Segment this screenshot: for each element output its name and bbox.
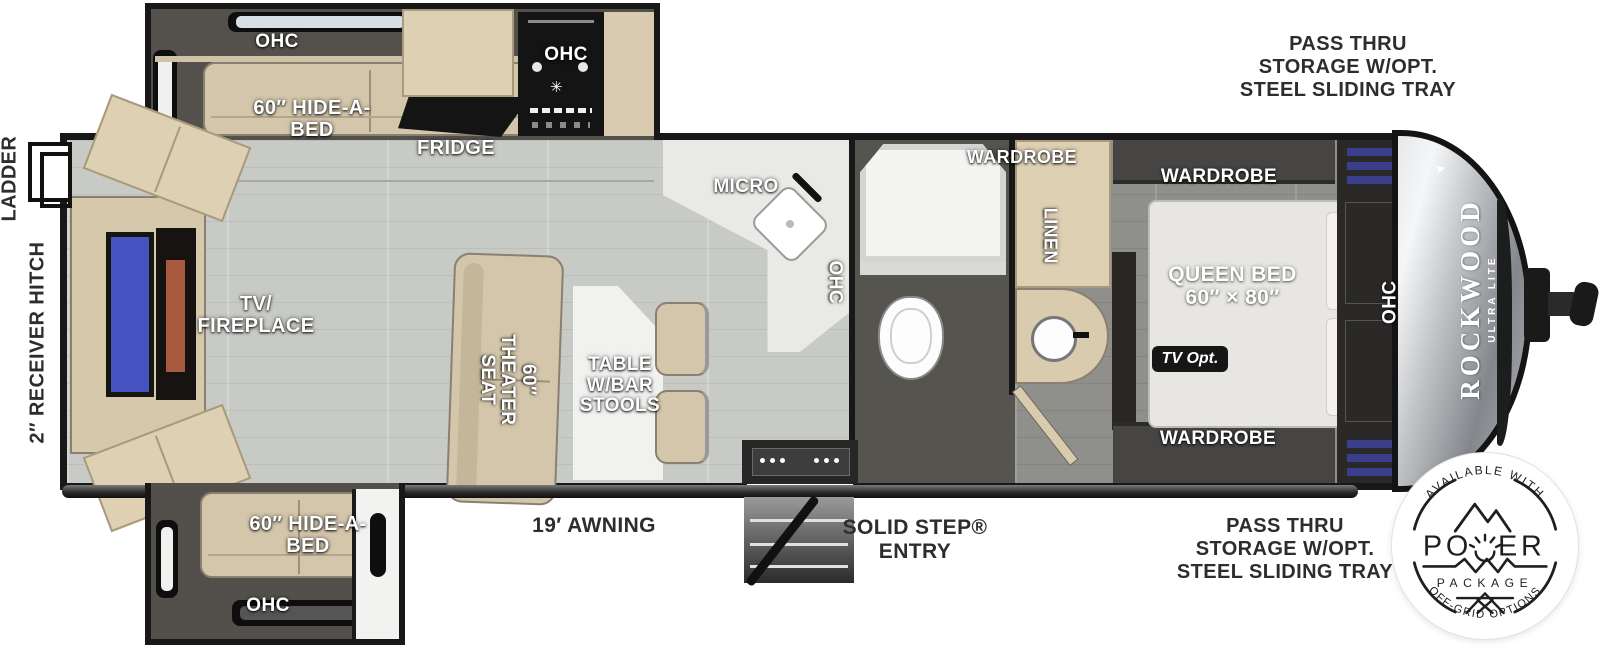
rear-slide-side-window-icon xyxy=(156,520,178,598)
counter-right-of-stove xyxy=(604,12,654,136)
label-pass-thru-top: PASS THRU STORAGE W/OPT. STEEL SLIDING T… xyxy=(1198,33,1498,103)
label-wardrobe-bottom: WARDROBE xyxy=(1148,429,1288,450)
label-tv-opt: TV Opt. xyxy=(1162,350,1219,368)
vanity-sink-icon xyxy=(1031,316,1077,362)
label-ladder: LADDER xyxy=(0,134,22,224)
label-solid-step-entry: SOLID STEP® ENTRY xyxy=(830,516,1000,565)
ladder-icon-inner xyxy=(40,152,72,208)
bath-vanity xyxy=(1015,288,1109,384)
floorplan-canvas: ✳ xyxy=(0,0,1600,661)
label-fridge: FRIDGE xyxy=(396,138,516,160)
sun-icon xyxy=(1470,535,1500,561)
mountains-icon xyxy=(1455,504,1510,531)
label-hide-a-bed-rear: 60″ HIDE-A- BED xyxy=(218,514,398,557)
label-micro: MICRO xyxy=(706,177,786,198)
label-ohc-stove: OHC xyxy=(536,45,596,66)
wall-top-front xyxy=(654,133,1420,140)
power-package-badge-art: AVAILABLE WITH PO ER PACKAGE xyxy=(1392,453,1578,639)
bedroom-tv-wall xyxy=(1112,252,1136,430)
bathroom-wall-left xyxy=(849,140,855,483)
label-theater-seat: 60″ THEATER SEAT xyxy=(476,320,538,440)
brand-ultra-lite: ULTRA LITE xyxy=(1487,234,1501,364)
power-package-badge: AVAILABLE WITH PO ER PACKAGE xyxy=(1392,453,1578,639)
rear-slide-exterior-wall xyxy=(352,489,399,639)
label-linen: LINEN xyxy=(1040,201,1059,271)
shower-ledge xyxy=(860,262,1006,275)
label-receiver-hitch: 2″ RECEIVER HITCH xyxy=(26,228,49,458)
label-ohc-front-slide: OHC xyxy=(247,32,307,53)
tongue-jack-handle xyxy=(1568,280,1600,328)
label-wardrobe-bath: WARDROBE xyxy=(962,148,1082,167)
queen-bed xyxy=(1148,200,1358,428)
label-table-bar-stools: TABLE W/BAR STOOLS xyxy=(570,355,670,417)
label-ohc-rear-slide: OHC xyxy=(238,596,298,617)
label-ohc-kitchen: OHC xyxy=(824,250,845,314)
pantry-cabinet xyxy=(402,9,514,97)
tv-opt-badge: TV Opt. xyxy=(1152,346,1228,372)
badge-power-right: ER xyxy=(1498,530,1546,562)
label-queen-bed: QUEEN BED 60″ × 80″ xyxy=(1140,264,1325,309)
svg-text:AVAILABLE WITH: AVAILABLE WITH xyxy=(1422,463,1547,501)
brand-rockwood: ROCKWOOD xyxy=(1455,184,1485,414)
badge-power-left: PO xyxy=(1423,530,1472,562)
label-pass-thru-bottom: PASS THRU STORAGE W/OPT. STEEL SLIDING T… xyxy=(1135,515,1435,585)
toilet xyxy=(878,296,944,380)
badge-arc-top-text: AVAILABLE WITH xyxy=(1422,463,1547,501)
label-tv-fireplace: TV/ FIREPLACE xyxy=(186,294,326,337)
badge-package-text: PACKAGE xyxy=(1437,576,1534,590)
label-awning: 19′ AWNING xyxy=(514,514,674,538)
label-ohc-bedroom: OHC xyxy=(1381,272,1402,332)
front-slide-window-icon xyxy=(228,12,413,32)
label-wardrobe-top: WARDROBE xyxy=(1149,167,1289,188)
entry-landing xyxy=(742,440,858,484)
tongue-jack-pad xyxy=(1524,268,1550,342)
label-hide-a-bed-front: 60″ HIDE-A- BED xyxy=(222,98,402,141)
stove: ✳ xyxy=(518,12,604,136)
tv-screen xyxy=(106,232,154,397)
burner-icon: ✳ xyxy=(550,78,563,96)
